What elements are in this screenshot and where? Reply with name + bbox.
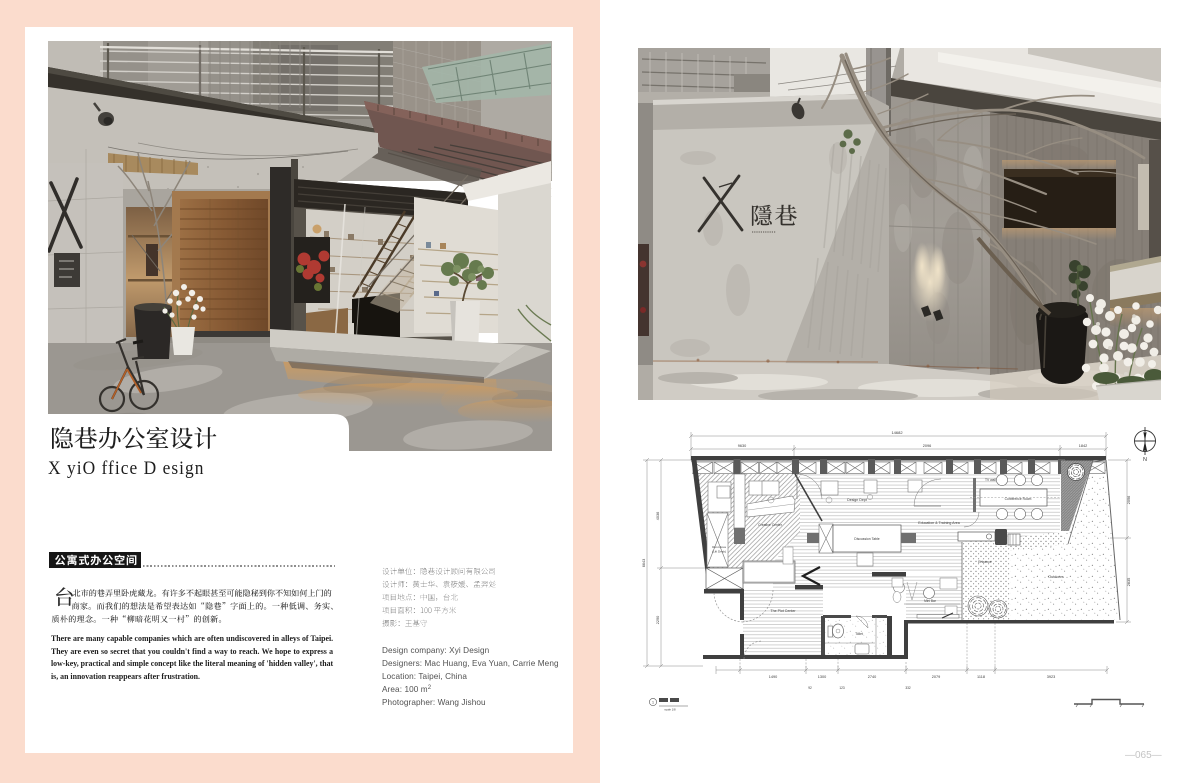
svg-text:Education & Training Area: Education & Training Area xyxy=(918,521,960,525)
svg-text:1: 1 xyxy=(652,701,654,705)
svg-text:N: N xyxy=(1143,457,1147,463)
svg-text:1490: 1490 xyxy=(769,675,777,679)
svg-text:Discussion Table: Discussion Table xyxy=(854,537,879,541)
svg-text:2096: 2096 xyxy=(923,444,931,448)
svg-text:9630: 9630 xyxy=(738,444,746,448)
svg-text:2835: 2835 xyxy=(1127,578,1131,586)
svg-text:2096: 2096 xyxy=(1127,496,1131,504)
svg-text:2079: 2079 xyxy=(932,675,940,679)
svg-text:4036: 4036 xyxy=(656,512,660,520)
svg-text:Outdoors: Outdoors xyxy=(1048,575,1064,579)
svg-text:6643: 6643 xyxy=(642,559,646,567)
svg-text:Conference Room: Conference Room xyxy=(1005,497,1032,501)
svg-text:2290: 2290 xyxy=(656,616,660,624)
svg-text:TV wall: TV wall xyxy=(985,478,996,482)
svg-text:1842: 1842 xyxy=(1079,444,1087,448)
svg-text:Design Dept: Design Dept xyxy=(847,498,867,502)
svg-text:1300: 1300 xyxy=(818,675,826,679)
svg-text:92: 92 xyxy=(808,686,812,690)
svg-text:The Plot Center: The Plot Center xyxy=(770,609,796,613)
svg-text:3923: 3923 xyxy=(1047,675,1055,679)
svg-text:Rest Area: Rest Area xyxy=(712,545,726,549)
svg-text:Toilet: Toilet xyxy=(855,632,863,636)
svg-text:(Lift Desk): (Lift Desk) xyxy=(712,550,726,554)
svg-text:1118: 1118 xyxy=(977,675,985,679)
svg-text:332: 332 xyxy=(905,686,911,690)
svg-text:Mini Bar: Mini Bar xyxy=(924,599,937,603)
svg-text:123: 123 xyxy=(839,686,845,690)
svg-text:Creative Center: Creative Center xyxy=(758,523,783,527)
svg-text:14682: 14682 xyxy=(891,430,903,435)
svg-text:2740: 2740 xyxy=(868,675,876,679)
svg-text:Entrance: Entrance xyxy=(978,560,992,564)
svg-text:scale 1/8: scale 1/8 xyxy=(664,708,676,712)
